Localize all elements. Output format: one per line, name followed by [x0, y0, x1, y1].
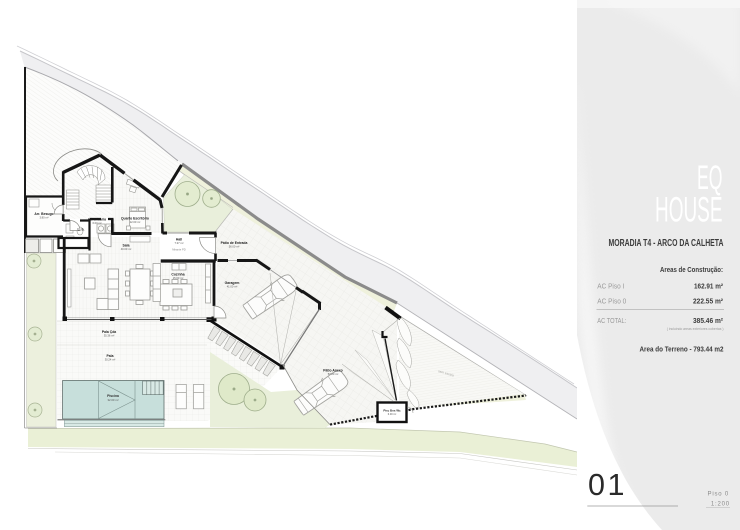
svg-text:Pala Çda: Pala Çda — [102, 330, 116, 334]
svg-text:6.00 m²: 6.00 m² — [388, 413, 397, 416]
svg-text:12.00 m²: 12.00 m² — [130, 220, 141, 224]
svg-text:15.60 m²: 15.60 m² — [173, 276, 184, 280]
svg-text:162.91 m²: 162.91 m² — [694, 284, 724, 291]
svg-text:AC Piso I: AC Piso I — [597, 284, 624, 291]
svg-text:Hall: Hall — [176, 238, 182, 242]
svg-text:HOUSE: HOUSE — [655, 190, 723, 230]
svg-text:35.36 m²: 35.36 m² — [104, 334, 115, 338]
svg-text:Sala: Sala — [123, 244, 130, 248]
svg-text:Pátio Anexo: Pátio Anexo — [323, 369, 342, 373]
svg-text:Areas de Construção:: Areas de Construção: — [660, 267, 723, 274]
svg-text:6.00 m²: 6.00 m² — [92, 221, 101, 225]
svg-text:Pala: Pala — [107, 354, 114, 358]
svg-text:32.00 m²: 32.00 m² — [107, 398, 118, 402]
svg-text:41.00 m²: 41.00 m² — [227, 285, 238, 289]
svg-text:3.80 m²: 3.80 m² — [39, 216, 48, 220]
svg-text:40.00 m²: 40.00 m² — [121, 247, 132, 251]
svg-text:56.00 m²: 56.00 m² — [229, 245, 240, 249]
svg-text:AC Piso 0: AC Piso 0 — [597, 299, 626, 306]
svg-text:222.55 m²: 222.55 m² — [693, 299, 724, 306]
svg-text:57.20 m²: 57.20 m² — [328, 372, 339, 376]
svg-text:01: 01 — [588, 468, 627, 502]
svg-text:1:200: 1:200 — [711, 502, 730, 508]
svg-text:30.24 m²: 30.24 m² — [105, 358, 116, 362]
svg-text:( incluindo areas exteriores c: ( incluindo areas exteriores cobertas ) — [667, 327, 724, 331]
svg-text:Garagem: Garagem — [225, 281, 240, 285]
svg-text:Quarto Escritório: Quarto Escritório — [121, 217, 149, 221]
svg-text:Lavandaria: Lavandaria — [88, 218, 106, 222]
svg-text:Pisc Box Wc: Pisc Box Wc — [383, 409, 401, 413]
svg-text:Cozinha: Cozinha — [171, 273, 184, 277]
svg-text:7.37 m²: 7.37 m² — [174, 241, 183, 245]
svg-text:Mirante PD: Mirante PD — [172, 248, 186, 252]
svg-text:385.46 m²: 385.46 m² — [693, 318, 724, 325]
svg-text:L. b.: L. b. — [78, 228, 85, 232]
svg-text:Piso 0: Piso 0 — [708, 492, 729, 498]
svg-text:Arr. Besugo: Arr. Besugo — [34, 212, 53, 216]
svg-text:AC TOTAL:: AC TOTAL: — [597, 318, 626, 325]
svg-text:Pátio de Entrada: Pátio de Entrada — [221, 241, 248, 245]
svg-text:Area do Terreno - 793.44 m2: Area do Terreno - 793.44 m2 — [640, 347, 724, 354]
svg-text:MORADIA T4 - ARCO DA CALHETA: MORADIA T4 - ARCO DA CALHETA — [609, 238, 724, 249]
